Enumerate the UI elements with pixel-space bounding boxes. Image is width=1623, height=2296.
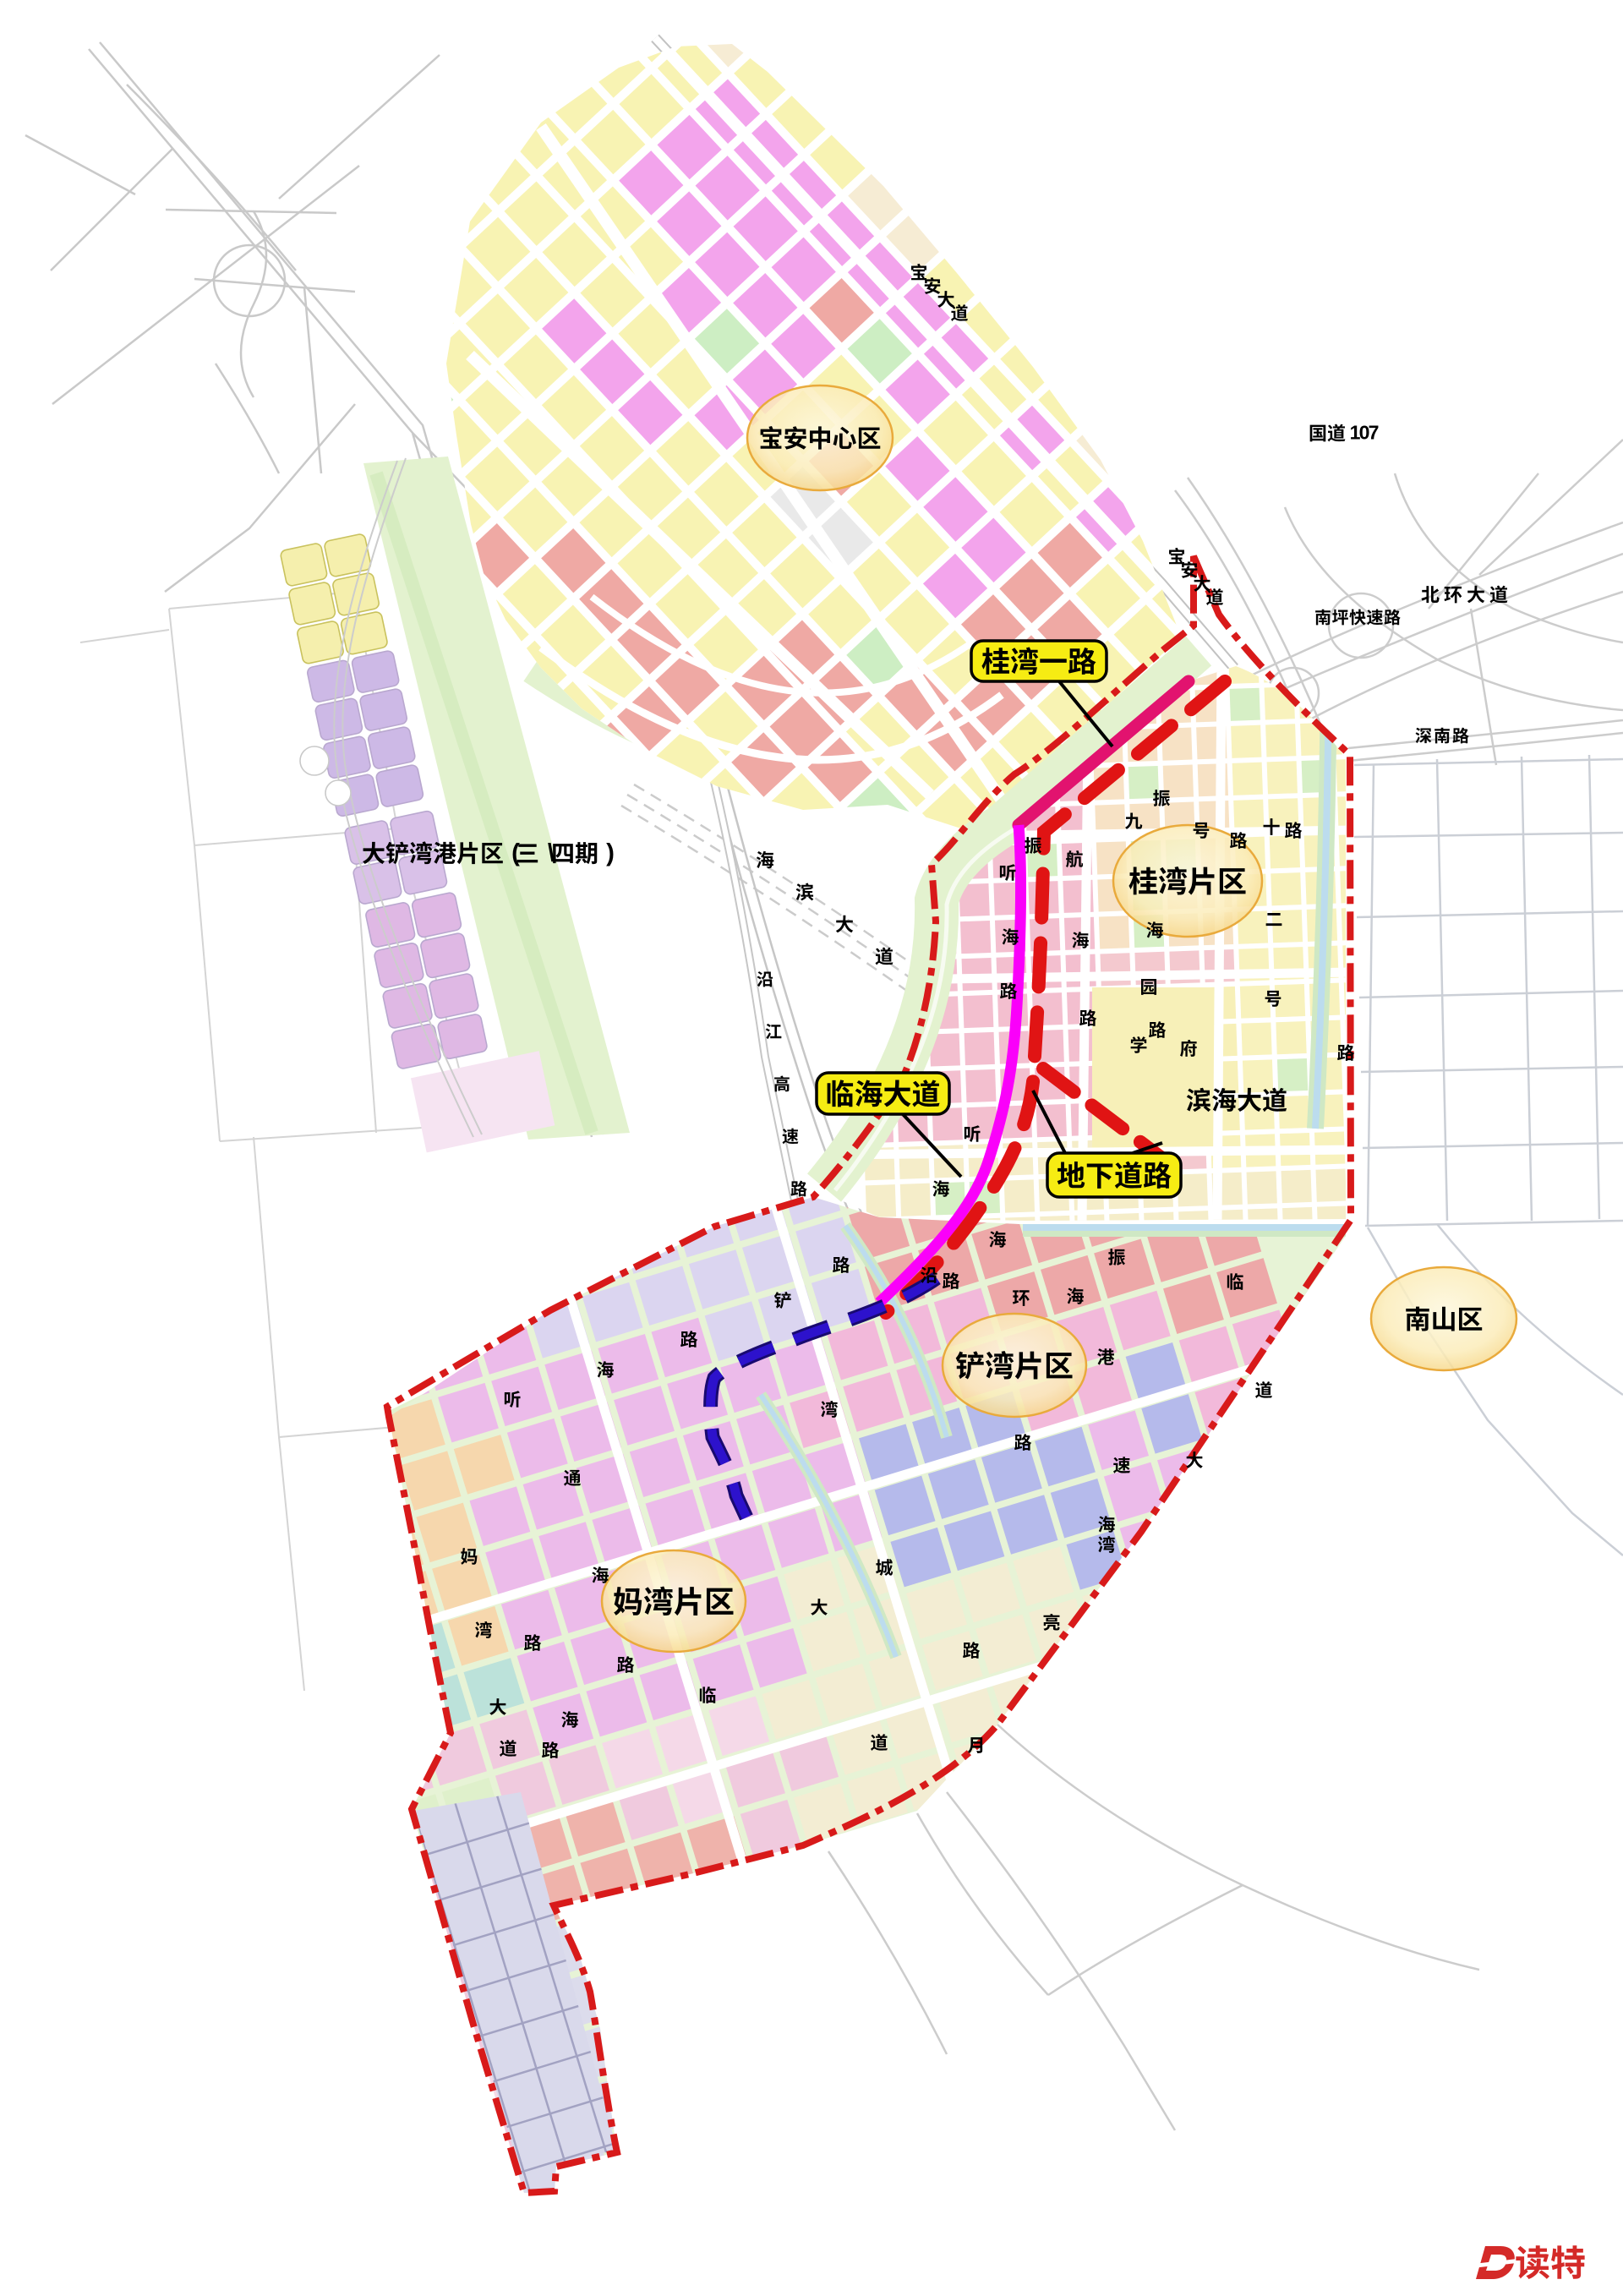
svg-text:(: (	[511, 839, 520, 867]
svg-text:7: 7	[1369, 422, 1380, 444]
svg-text:): )	[606, 839, 615, 867]
